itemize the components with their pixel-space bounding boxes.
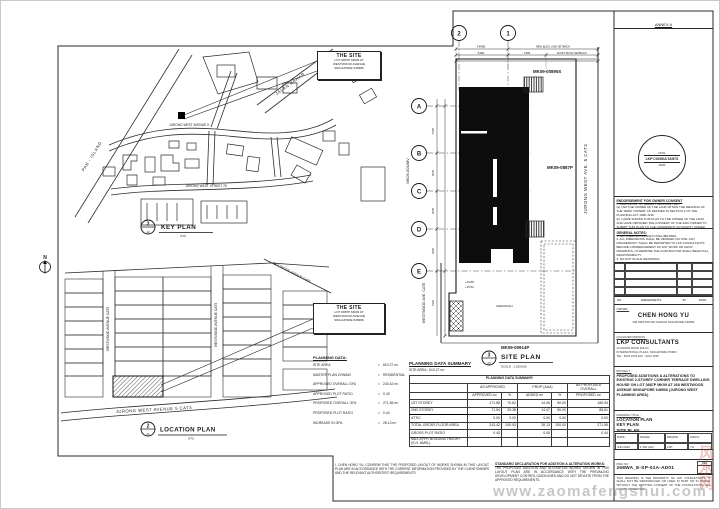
planning-data-label: APPROVED PLOT RATIO <box>313 392 375 396</box>
road-label-westwood: WESTWOOD AVE. CAT5 <box>422 283 426 324</box>
road-label-westwood-left: WESTWOOD AVENUE CAT5 <box>106 307 110 352</box>
drawing-title-section: DRAWING TITLE : LOCATION PLANKEY PLANSIT… <box>614 411 713 432</box>
lot-label-top: MK09-00895X <box>533 69 561 74</box>
planning-data-label: MASTER PLAN ZONING <box>313 373 375 377</box>
site-plan-bubble-number: 3 <box>488 353 491 359</box>
revision-header-row: NO. AMENDMENTS BY DATE <box>614 297 713 305</box>
road-label-pan-island: PAN - ISLAND <box>81 140 103 172</box>
svg-text:B: B <box>417 151 422 157</box>
meta-drawn-value: LKP <box>665 443 688 450</box>
titleblock-top-label-box: ANNEX A <box>614 11 713 29</box>
consultant-phone: TEL : 6223 1533 FAX : 6223 1535 <box>617 354 711 358</box>
site-plan-grille-top <box>524 77 543 92</box>
location-plan-lots <box>65 259 331 397</box>
watermark-url: www.zaomafengshui.com <box>493 483 707 500</box>
general-note-item: 3. DO NOT SCALE DRAWINGS. <box>617 258 711 262</box>
location-plan-bubble-number: 2 <box>147 424 150 430</box>
road-label-jurong: JURONG WEST AVE. 5 CAT3 <box>583 144 588 214</box>
svg-text:D: D <box>417 227 422 233</box>
north-label: N <box>43 255 47 261</box>
summary-row-label: MAX APPR BUILDING HEIGHT (S.H. AMSL) <box>410 437 468 446</box>
lot-label-left: MK09-00188V <box>405 158 410 184</box>
svg-text:E: E <box>417 269 421 275</box>
road-label-jurong-west-ave: JURONG WEST AVENUE 5 <box>169 123 209 127</box>
key-plan-scale: NTS <box>180 234 186 238</box>
summary-data-row: ATTIC 0.00 0.00 0.00 0.00 0.00 <box>410 415 610 423</box>
key-plan-bubble-sheet: A3 <box>146 230 150 234</box>
summary-row-label: GROSS PLOT RATIO <box>410 430 468 438</box>
planning-data-label: INCREASE IN GFA <box>313 421 375 425</box>
summary-group-row: AS APPROVED PROP (A&A) AS PROPOSED OVERA… <box>410 383 610 392</box>
key-plan-title-text: KEY PLAN <box>161 224 196 231</box>
stamp-area: CIVIL LKP CONSULTANTS 2020 <box>614 29 713 197</box>
general-notes-section: GENERAL NOTES: 1. ALL DIMENSIONS ARE IN … <box>614 229 713 263</box>
location-plan-map: WESTWOOD AVENUE CAT5 WESTWOOD AVENUE CAT… <box>59 251 339 447</box>
location-plan-scale: NTS <box>188 437 194 441</box>
svg-text:1: 1 <box>506 31 510 37</box>
svg-text:3035: 3035 <box>431 169 435 176</box>
svg-text:5105: 5105 <box>431 127 435 134</box>
endorsement-section: ENDORSEMENT FOR OWNER CONSENT I, CHEN HO… <box>614 197 713 229</box>
stamp-line2: LKP CONSULTANTS <box>644 155 681 163</box>
svg-text:EXIST ROOF SETBACK: EXIST ROOF SETBACK <box>557 51 587 55</box>
project-section: PROJECT : PROPOSED ADDITIONS & ALTERATIO… <box>614 367 713 411</box>
svg-text:+15.50: +15.50 <box>465 285 474 289</box>
svg-text:A: A <box>417 104 422 110</box>
road-label-jurong-west: JURONG WEST AVENUE 5 CAT3 <box>116 405 193 414</box>
road-label-jurong-west-st: JURONG WEST STREET 75 <box>185 184 227 188</box>
site-plan-title-text: SITE PLAN <box>501 354 541 361</box>
general-note-item: 2. ALL DIMENSIONS SHALL BE VERIFIED ON S… <box>617 238 711 257</box>
meta-scale-value: 1:150 (A3) <box>638 443 665 450</box>
owner-section: OWNER : CHEN HONG YU 268 WESTWOOD AVENUE… <box>614 305 713 333</box>
svg-text:3035: 3035 <box>431 207 435 214</box>
lot-label-bottom: MK09-00914P <box>501 345 529 350</box>
summary-data-row: TOTAL GROSS FLOOR AREA 243.42 100.00 28.… <box>410 422 610 430</box>
pe-stamp-seal: CIVIL LKP CONSULTANTS 2020 <box>638 135 686 183</box>
planning-data-separator: = <box>375 421 383 425</box>
planning-data-separator: = <box>375 382 383 386</box>
summary-row-label: ATTIC <box>410 415 468 423</box>
summary-title-row: PLANNING DATA SUMMARY <box>410 376 610 384</box>
location-plan-title: 2 A3 LOCATION PLAN NTS <box>141 422 227 441</box>
owner-name: CHEN HONG YU <box>617 313 711 319</box>
site-plan-level-labels: +15.88 +15.50 VERANDAH <box>465 280 513 308</box>
summary-data-row: 1ST STOREY 171.88 70.62 14.06 50.00 185.… <box>410 400 610 408</box>
owner-declaration-block: I, CHEN HONG YU, CONFIRM THAT THE PROPOS… <box>335 463 489 500</box>
planning-data-separator: = <box>375 401 383 405</box>
svg-text:5490: 5490 <box>478 51 485 55</box>
road-label-jalan-bahar: JALAN BAHAR <box>274 71 305 96</box>
location-plan-title-text: LOCATION PLAN <box>160 427 216 434</box>
planning-data-separator: = <box>375 373 383 377</box>
meta-date-label: DATE : <box>615 433 638 443</box>
svg-text:+15.88: +15.88 <box>465 280 474 284</box>
rev-col-no: NO. <box>614 298 625 303</box>
key-plan-site-callout: THE SITE LOT 0887P MK09 AT WESTWOOD AVEN… <box>317 51 381 80</box>
summary-site-area: SITE AREA : 610.27 m² <box>409 368 609 372</box>
svg-text:4420: 4420 <box>431 247 435 254</box>
rev-col-amendments: AMENDMENTS <box>625 298 677 303</box>
summary-caption-block: PLANNING DATA SUMMARY SITE AREA : 610.27… <box>409 361 609 372</box>
location-plan-site-hatch <box>113 376 163 397</box>
revision-grid <box>614 263 713 297</box>
owner-caption: OWNER : <box>617 307 711 311</box>
planning-data-label: APPROVED OVERALL GFA <box>313 382 375 386</box>
location-plan-site-callout: THE SITE LOT 0887P MK09 AT WESTWOOD AVEN… <box>313 303 385 334</box>
summary-row-label: TOTAL GROSS FLOOR AREA <box>410 422 468 430</box>
planning-summary-table: PLANNING DATA SUMMARY AS APPROVED PROP (… <box>409 375 610 447</box>
drawing-sheet: PAN - ISLAND JALAN BAHAR JURONG WEST AVE… <box>0 0 720 509</box>
meta-checked-label: CHK'D : <box>688 433 712 443</box>
planning-data-label: PROPOSED OVERALL GFA <box>313 401 375 405</box>
summary-data-row: 2ND STOREY 71.54 29.38 14.07 50.00 85.61 <box>410 407 610 415</box>
meta-date-value: JUN 2020 <box>615 443 638 450</box>
svg-text:7465: 7465 <box>524 51 531 55</box>
svg-text:14985: 14985 <box>477 45 486 49</box>
planning-data-separator: = <box>375 392 383 396</box>
planning-data-separator: = <box>375 363 383 367</box>
site-plan-grid-columns: 2 1 <box>452 26 516 92</box>
north-arrow-icon: N <box>35 253 55 277</box>
site-plan-gate-hatch <box>450 301 463 331</box>
titleblock-top-label: ANNEX A <box>655 22 672 27</box>
veranda-label: VERANDAH <box>496 304 513 308</box>
endorsement-item-b: (b) I HAVE SHOWN THIS PLAN TO THE OWNER … <box>617 218 711 229</box>
site-plan-left-dim-labels: 5105 3035 3035 4420 3120 <box>431 127 435 306</box>
summary-caption: PLANNING DATA SUMMARY <box>409 361 609 366</box>
rev-col-date: DATE <box>692 298 713 303</box>
lot-label-right: MK09-0887P <box>547 165 573 170</box>
site-plan-building <box>459 87 529 263</box>
planning-data-separator: = <box>375 411 383 415</box>
site-callout-line3: SINGAPORE 648966 <box>319 67 379 71</box>
svg-text:C: C <box>417 189 422 195</box>
rev-col-by: BY <box>677 298 692 303</box>
site-plan-drawing: 2 1 A B C D E <box>401 11 616 373</box>
location-plan-bubble-sheet: A3 <box>146 432 150 436</box>
site-plan-top-dim-labels: 14985 NEW BLDG LINE SETBACK 5490 7465 EX… <box>477 45 587 55</box>
site-plan-grille-mid <box>526 221 544 237</box>
standard-declaration-text: THE PROPOSED ADDITION AND ALTERATION WOR… <box>495 466 609 482</box>
svg-text:NEW BLDG LINE SETBACK: NEW BLDG LINE SETBACK <box>536 45 571 49</box>
meta-scale-label: SCALE : <box>638 433 665 443</box>
meta-drawn-label: DRAWN : <box>665 433 688 443</box>
svg-text:3120: 3120 <box>431 299 435 306</box>
road-label-westwood-right: WESTWOOD AVENUE CAT5 <box>214 303 218 348</box>
owner-declaration-text: I, CHEN HONG YU, CONFIRM THAT THE PROPOS… <box>335 463 489 475</box>
summary-table-title: PLANNING DATA SUMMARY <box>410 376 610 384</box>
summary-data-row: GROSS PLOT RATIO 0.40 0.05 0.44 <box>410 430 610 438</box>
summary-data-row: MAX APPR BUILDING HEIGHT (S.H. AMSL) <box>410 437 610 446</box>
planning-data-label: SITE AREA <box>313 363 375 367</box>
summary-head-row: APPROVED m² % ADDED m² % PROPOSED m² <box>410 392 610 400</box>
title-block: ANNEX A CIVIL LKP CONSULTANTS 2020 ENDOR… <box>614 11 713 501</box>
site-callout-line3: SINGAPORE 648966 <box>315 319 383 323</box>
consultant-section: QUALIFIED PERSON : LKP CONSULTANTS 10 AN… <box>614 333 713 367</box>
summary-row-label: 1ST STOREY <box>410 400 468 408</box>
consultant-caption: QUALIFIED PERSON : <box>617 335 711 339</box>
summary-row-label: 2ND STOREY <box>410 407 468 415</box>
project-caption: PROJECT : <box>617 369 711 373</box>
stamp-line3: 2020 <box>659 163 666 167</box>
owner-address: 268 WESTWOOD AVENUE SINGAPORE 648966 <box>617 320 711 324</box>
project-description: PROPOSED ADDITIONS & ALTERATIONS TO EXIS… <box>617 374 711 399</box>
location-plan-bottom-road <box>61 389 337 421</box>
planning-data-label: PROPOSED PLOT RATIO <box>313 411 375 415</box>
svg-text:2: 2 <box>457 31 461 37</box>
site-plan-dashed-lot <box>541 241 576 333</box>
key-plan-bubble-number: 2 <box>147 222 150 228</box>
